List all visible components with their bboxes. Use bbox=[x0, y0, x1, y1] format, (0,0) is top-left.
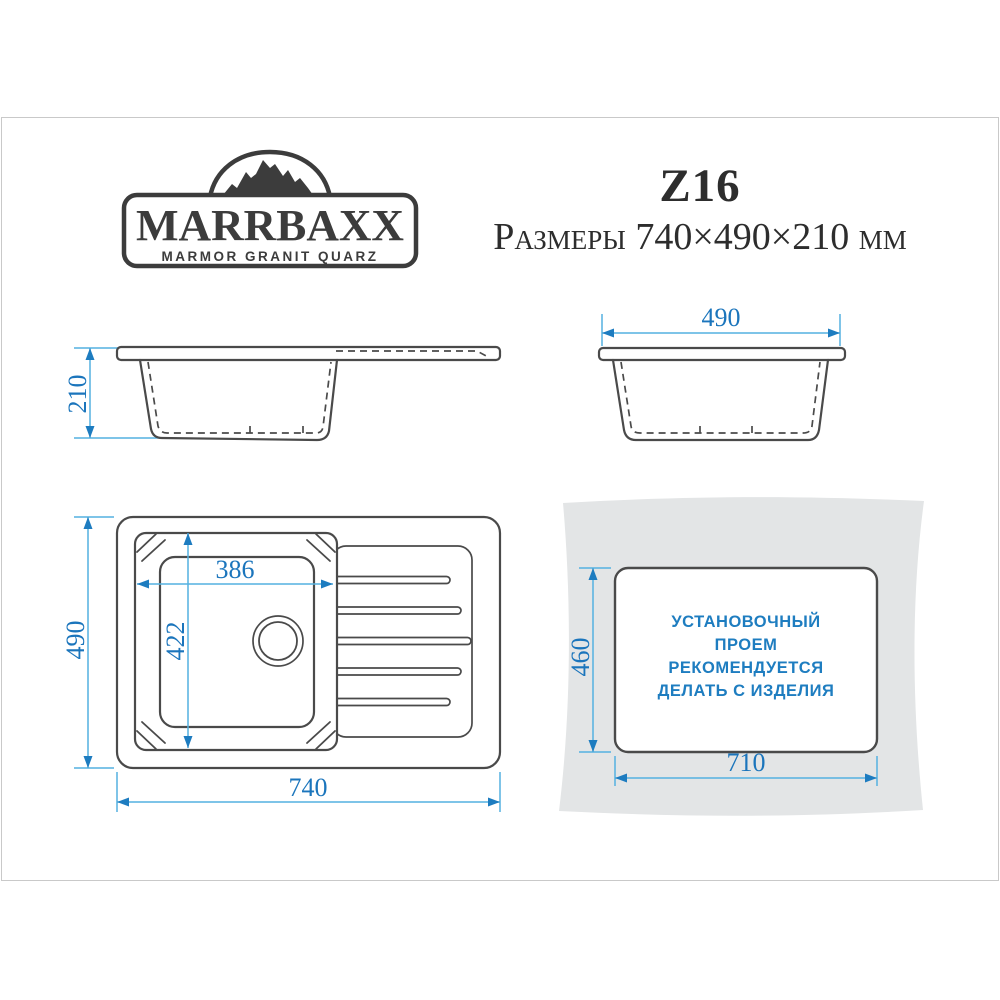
bowl-profile bbox=[613, 360, 828, 440]
dim-label-overall-width: 490 bbox=[61, 621, 90, 660]
sink-rim-profile bbox=[117, 347, 500, 360]
arrow-right-icon bbox=[488, 798, 500, 807]
brand-tagline: MARMOR GRANIT QUARZ bbox=[162, 249, 379, 264]
dim-label-cutout-length: 710 bbox=[727, 748, 766, 777]
arrow-up-icon bbox=[86, 348, 95, 360]
brand-name: MARRBAXX bbox=[136, 201, 404, 250]
drainboard-groove bbox=[328, 699, 450, 706]
bowl-hidden-line bbox=[621, 362, 820, 433]
front-view: 490 bbox=[599, 303, 845, 440]
drainboard-groove bbox=[328, 668, 461, 675]
dim-label-cutout-width: 460 bbox=[566, 638, 595, 677]
cutout-note-line: ДЕЛАТЬ С ИЗДЕЛИЯ bbox=[658, 682, 835, 700]
top-view: 386 422 490 740 bbox=[61, 517, 500, 812]
side-view: 210 bbox=[63, 347, 500, 440]
brand-logo: MARRBAXX MARMOR GRANIT QUARZ bbox=[124, 152, 416, 266]
dim-label-depth: 210 bbox=[63, 375, 92, 414]
cutout-note-line: УСТАНОВОЧНЫЙ bbox=[671, 612, 820, 631]
dim-label-bowl-width: 422 bbox=[161, 622, 190, 661]
arrow-left-icon bbox=[602, 329, 614, 338]
dim-label-width: 490 bbox=[702, 303, 741, 332]
drainboard-groove bbox=[328, 577, 450, 584]
arrow-down-icon bbox=[86, 426, 95, 438]
arrow-right-icon bbox=[828, 329, 840, 338]
dim-label-bowl-length: 386 bbox=[216, 555, 255, 584]
installation-cutout-view: УСТАНОВОЧНЫЙ ПРОЕМ РЕКОМЕНДУЕТСЯ ДЕЛАТЬ … bbox=[559, 497, 924, 816]
bowl-hidden-line bbox=[148, 362, 331, 433]
cutout-note-line: ПРОЕМ bbox=[715, 636, 778, 654]
arrow-left-icon bbox=[117, 798, 129, 807]
bowl-profile bbox=[140, 360, 337, 440]
arrow-down-icon bbox=[84, 756, 93, 768]
cutout-note-line: РЕКОМЕНДУЕТСЯ bbox=[668, 659, 823, 677]
arrow-up-icon bbox=[84, 517, 93, 529]
drain-hole-outer bbox=[253, 616, 303, 666]
drainboard-groove bbox=[328, 638, 471, 645]
dim-label-overall-length: 740 bbox=[289, 773, 328, 802]
sink-rim-profile bbox=[599, 348, 845, 360]
sink-dimension-sheet: Z16 Размеры 740×490×210 мм MARRBAXX MARM… bbox=[0, 0, 1000, 1000]
technical-drawing: MARRBAXX MARMOR GRANIT QUARZ 210 490 bbox=[0, 0, 1000, 1000]
drainboard-groove bbox=[328, 607, 461, 614]
